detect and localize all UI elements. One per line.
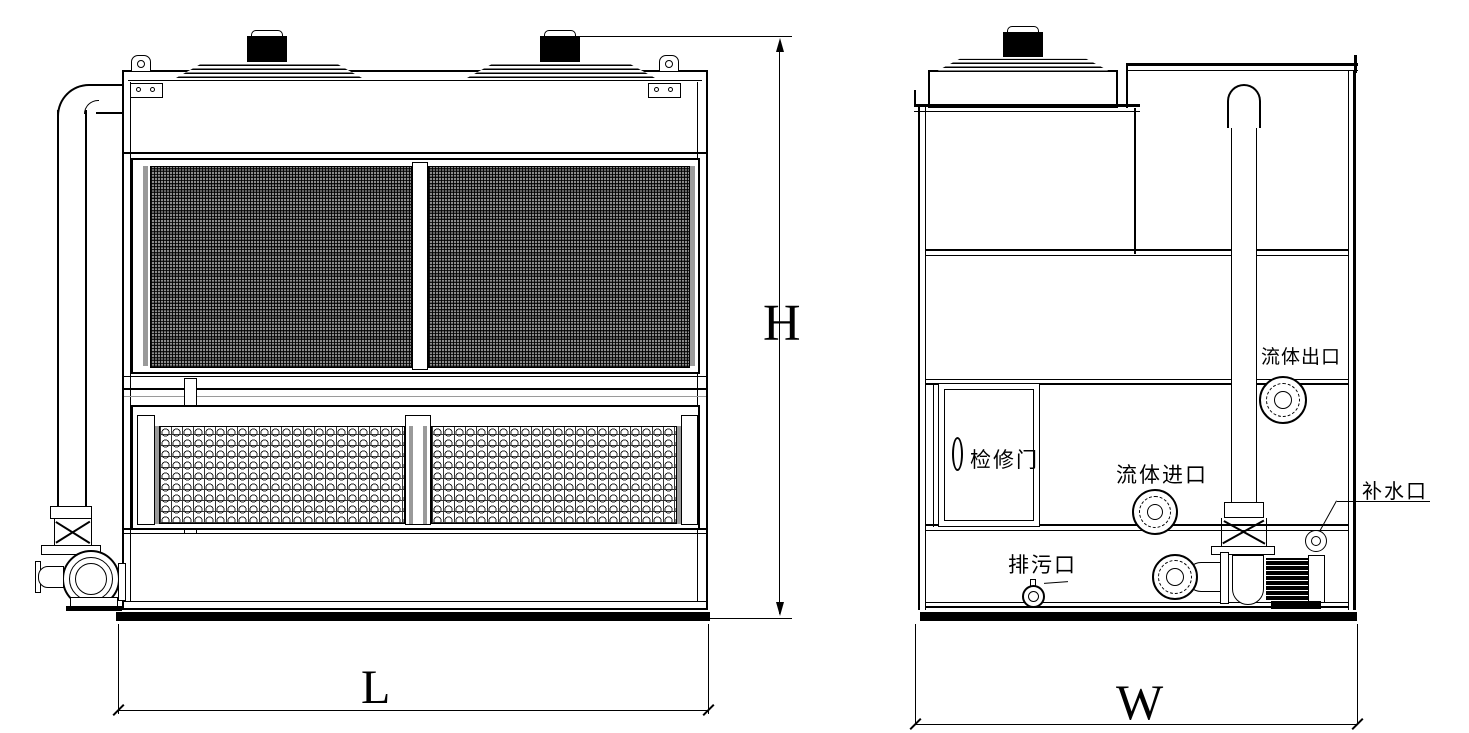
base-channel [920, 612, 1357, 621]
dim-label-width: W [1116, 677, 1163, 727]
roof-right-lip [1354, 55, 1357, 73]
riser-pipe-dome [1227, 84, 1261, 128]
pump-funnel-brace-side [1221, 518, 1267, 546]
fluid-outlet-label: 流体出口 [1261, 342, 1341, 369]
drain-valve-bore [1028, 591, 1039, 602]
pump-motor [1266, 558, 1308, 601]
rail-line [925, 530, 1348, 531]
access-door-handle [952, 437, 963, 471]
riser-pipe-side [1231, 126, 1257, 504]
pump-motor-base [1271, 601, 1321, 609]
side-wall-right [1353, 70, 1356, 610]
makeup-port-label: 补水口 [1362, 475, 1428, 504]
leader-line [1337, 501, 1430, 502]
rail-line [914, 104, 1140, 107]
side-wall-right-inner [1348, 70, 1349, 610]
side-wall-left-inner [925, 106, 926, 610]
fan-plenum [928, 70, 1118, 108]
access-door-label: 检修门 [970, 444, 1039, 474]
dim-ext-line [1357, 624, 1358, 724]
fan-motor-side [1003, 32, 1043, 57]
roof-left-edge [1126, 63, 1128, 108]
fan-cowl-side [935, 56, 1111, 72]
leader-line [1318, 501, 1337, 534]
side-view: 检修门 流体出口 流体进口 补水口 排污口 W [0, 0, 1469, 733]
suction-flange-bore [1166, 568, 1184, 586]
drain-port-label: 排污口 [1008, 549, 1077, 579]
makeup-port-bore [1311, 536, 1321, 546]
drawing-canvas: L H [0, 0, 1469, 733]
fan-motor-cap-side [1007, 26, 1039, 33]
fluid-inlet-label: 流体进口 [1116, 459, 1208, 489]
dim-ext-line [915, 624, 916, 724]
suction-flange-plate [1220, 552, 1229, 604]
pump-motor-endcap [1308, 555, 1325, 603]
rail-line [925, 249, 1348, 251]
fluid-outlet-bore [1274, 391, 1292, 409]
roof-line-inner [1126, 70, 1358, 71]
pump-collar-side [1224, 502, 1264, 518]
plenum-left-lip [914, 90, 916, 106]
fluid-inlet-bore [1147, 504, 1163, 520]
pump-casing-side [1232, 555, 1264, 605]
side-wall-left [918, 106, 920, 610]
door-side-strip [933, 383, 934, 527]
rail-line [914, 111, 1140, 112]
roof-line [1126, 63, 1358, 66]
section-divider [1134, 108, 1136, 254]
leader-line [1044, 581, 1068, 584]
rail-line [925, 255, 1348, 256]
